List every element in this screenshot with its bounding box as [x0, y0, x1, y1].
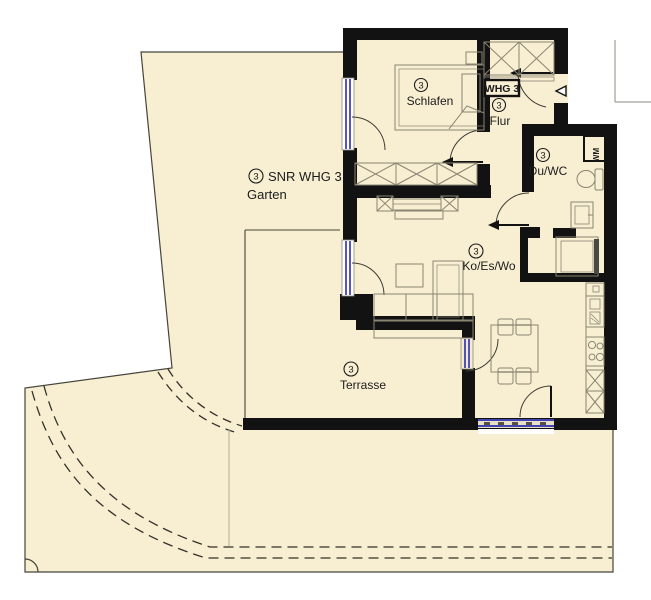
washing-machine-label: WM [592, 148, 601, 163]
corridor-lines [615, 40, 651, 102]
garten-name-label: Garten [247, 187, 287, 202]
flur-name-label: Flur [490, 114, 511, 128]
floorplan-page: WM [0, 0, 651, 600]
terrasse-name-label: Terrasse [340, 378, 386, 392]
livingroom-window [342, 240, 354, 296]
unit-label-box: WHG 3 [485, 80, 520, 96]
flur-number: 3 [496, 101, 501, 112]
koeswo-number: 3 [473, 247, 478, 258]
schlafen-number: 3 [418, 81, 423, 92]
duwc-number: 3 [540, 151, 545, 162]
duwc-name-label: Du/WC [529, 164, 568, 178]
south-window [478, 419, 554, 434]
floorplan-drawing: WM [0, 0, 651, 600]
garten-number: 3 [253, 172, 258, 183]
bedroom-window [342, 78, 354, 150]
schlafen-name-label: Schlafen [407, 94, 454, 108]
floor-area [25, 28, 616, 572]
koeswo-name-label: Ko/Es/Wo [462, 259, 515, 273]
terrace-door-west [461, 338, 473, 369]
unit-label: WHG 3 [485, 83, 520, 95]
garten-snr-label: SNR WHG 3 [268, 169, 342, 184]
terrasse-number: 3 [348, 365, 353, 376]
